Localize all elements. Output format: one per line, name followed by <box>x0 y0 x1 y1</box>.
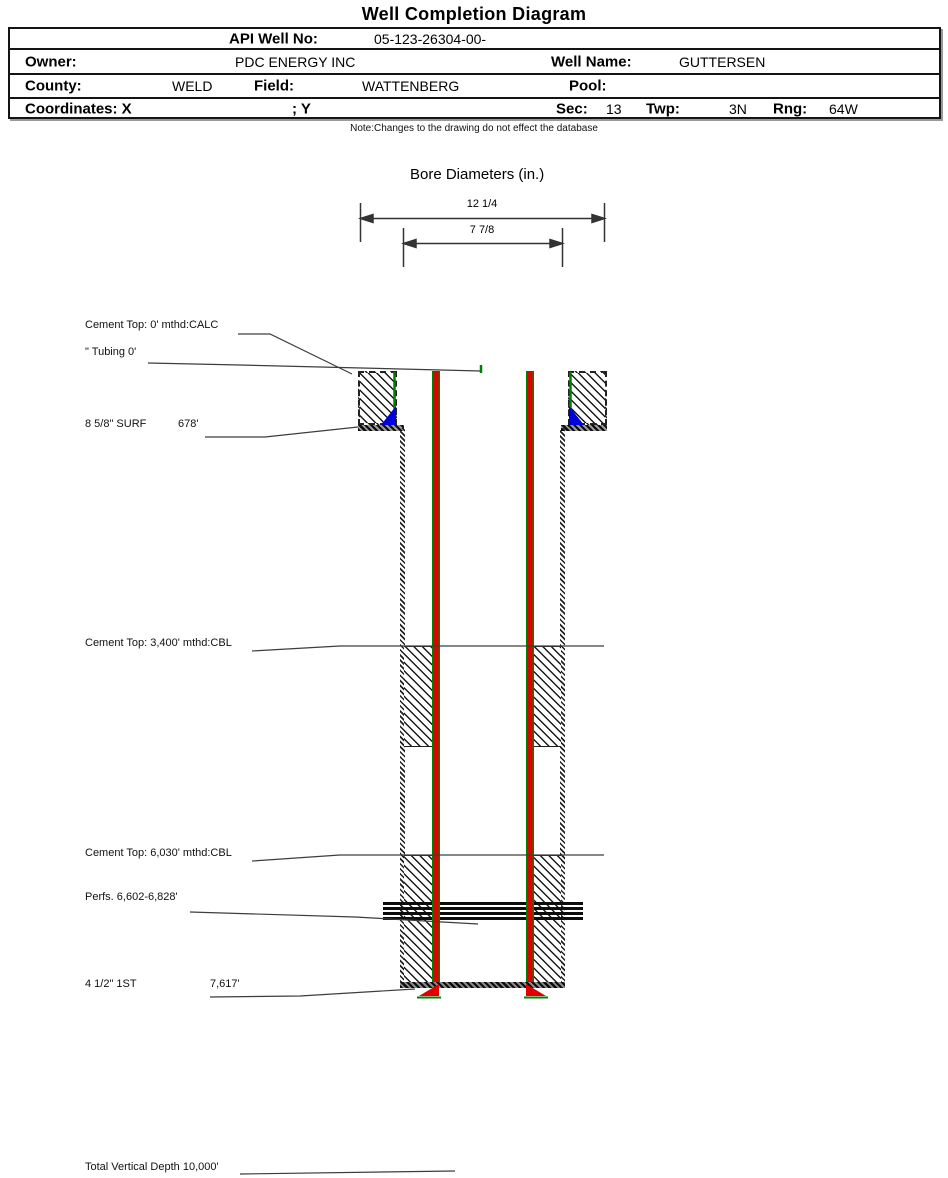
field-value: WATTENBERG <box>362 78 459 94</box>
perforation-line <box>383 907 583 910</box>
leader-production-casing <box>210 989 415 997</box>
well-name-value: GUTTERSEN <box>679 54 765 70</box>
perforations-label: Perfs. 6,602-6,828' <box>85 891 178 903</box>
surface-casing-block-right <box>568 371 607 425</box>
cement-band-3400-right <box>533 646 561 747</box>
surface-shoe-strip-left <box>358 425 404 431</box>
table-row-coordinates: Coordinates: X ; Y Sec: 13 Twp: 3N Rng: … <box>10 97 939 119</box>
casing-bottom-strip <box>400 982 565 988</box>
well-info-table: API Well No: 05-123-26304-00- Owner: PDC… <box>8 27 941 119</box>
cement-top-3400-label: Cement Top: 3,400' mthd:CBL <box>85 637 232 649</box>
tubing-green-lines <box>395 365 571 425</box>
sec-label: Sec: <box>556 101 588 118</box>
surface-casing-block-left <box>358 371 397 425</box>
leader-surface-casing <box>205 427 358 437</box>
table-row-owner: Owner: PDC ENERGY INC Well Name: GUTTERS… <box>10 48 939 73</box>
leader-tubing <box>148 363 481 371</box>
surface-casing-label: 8 5/8" SURF <box>85 418 146 430</box>
cement-top-6030-label: Cement Top: 6,030' mthd:CBL <box>85 847 232 859</box>
outer-diameter-value: 12 1/4 <box>450 198 514 210</box>
sec-value: 13 <box>606 101 622 117</box>
table-row-county: County: WELD Field: WATTENBERG Pool: <box>10 73 939 97</box>
perforation-line <box>383 902 583 905</box>
rng-value: 64W <box>829 101 858 117</box>
perforation-line <box>383 917 583 920</box>
owner-value: PDC ENERGY INC <box>235 54 355 70</box>
page-title: Well Completion Diagram <box>0 4 948 25</box>
api-label: API Well No: <box>229 30 318 47</box>
leader-cement-top-surface <box>238 334 352 374</box>
coordinates-y-label: ; Y <box>292 101 311 118</box>
inner-diameter-value: 7 7/8 <box>450 224 514 236</box>
surface-casing-shoe-markers <box>381 406 584 425</box>
cement-top-surface-label: Cement Top: 0' mthd:CALC <box>85 319 218 331</box>
field-label: Field: <box>254 78 294 95</box>
surface-casing-depth: 678' <box>178 418 198 430</box>
production-casing-label: 4 1/2" 1ST <box>85 978 137 990</box>
database-note: Note:Changes to the drawing do not effec… <box>0 123 948 134</box>
owner-label: Owner: <box>25 53 77 70</box>
pool-label: Pool: <box>569 78 607 95</box>
table-row-api: API Well No: 05-123-26304-00- <box>10 29 939 48</box>
county-label: County: <box>25 78 82 95</box>
county-value: WELD <box>172 78 212 94</box>
production-casing-string-right <box>526 371 534 985</box>
production-casing-string-left <box>432 371 440 985</box>
production-casing-depth: 7,617' <box>210 978 240 990</box>
twp-label: Twp: <box>646 101 680 118</box>
perforation-line <box>383 912 583 915</box>
surface-shoe-strip-right <box>561 425 607 431</box>
rng-label: Rng: <box>773 101 807 118</box>
cement-band-3400-left <box>404 646 432 747</box>
leader-total-depth <box>240 1171 455 1174</box>
total-vertical-depth-label: Total Vertical Depth 10,000' <box>85 1161 219 1173</box>
coordinates-label: Coordinates: X <box>25 101 132 118</box>
tubing-label: " Tubing 0' <box>85 346 136 358</box>
well-name-label: Well Name: <box>551 53 632 70</box>
bore-diameters-title: Bore Diameters (in.) <box>410 166 544 183</box>
api-value: 05-123-26304-00- <box>374 31 486 47</box>
well-completion-diagram-page: Well Completion Diagram API Well No: 05-… <box>0 0 948 1178</box>
twp-value: 3N <box>729 101 747 117</box>
